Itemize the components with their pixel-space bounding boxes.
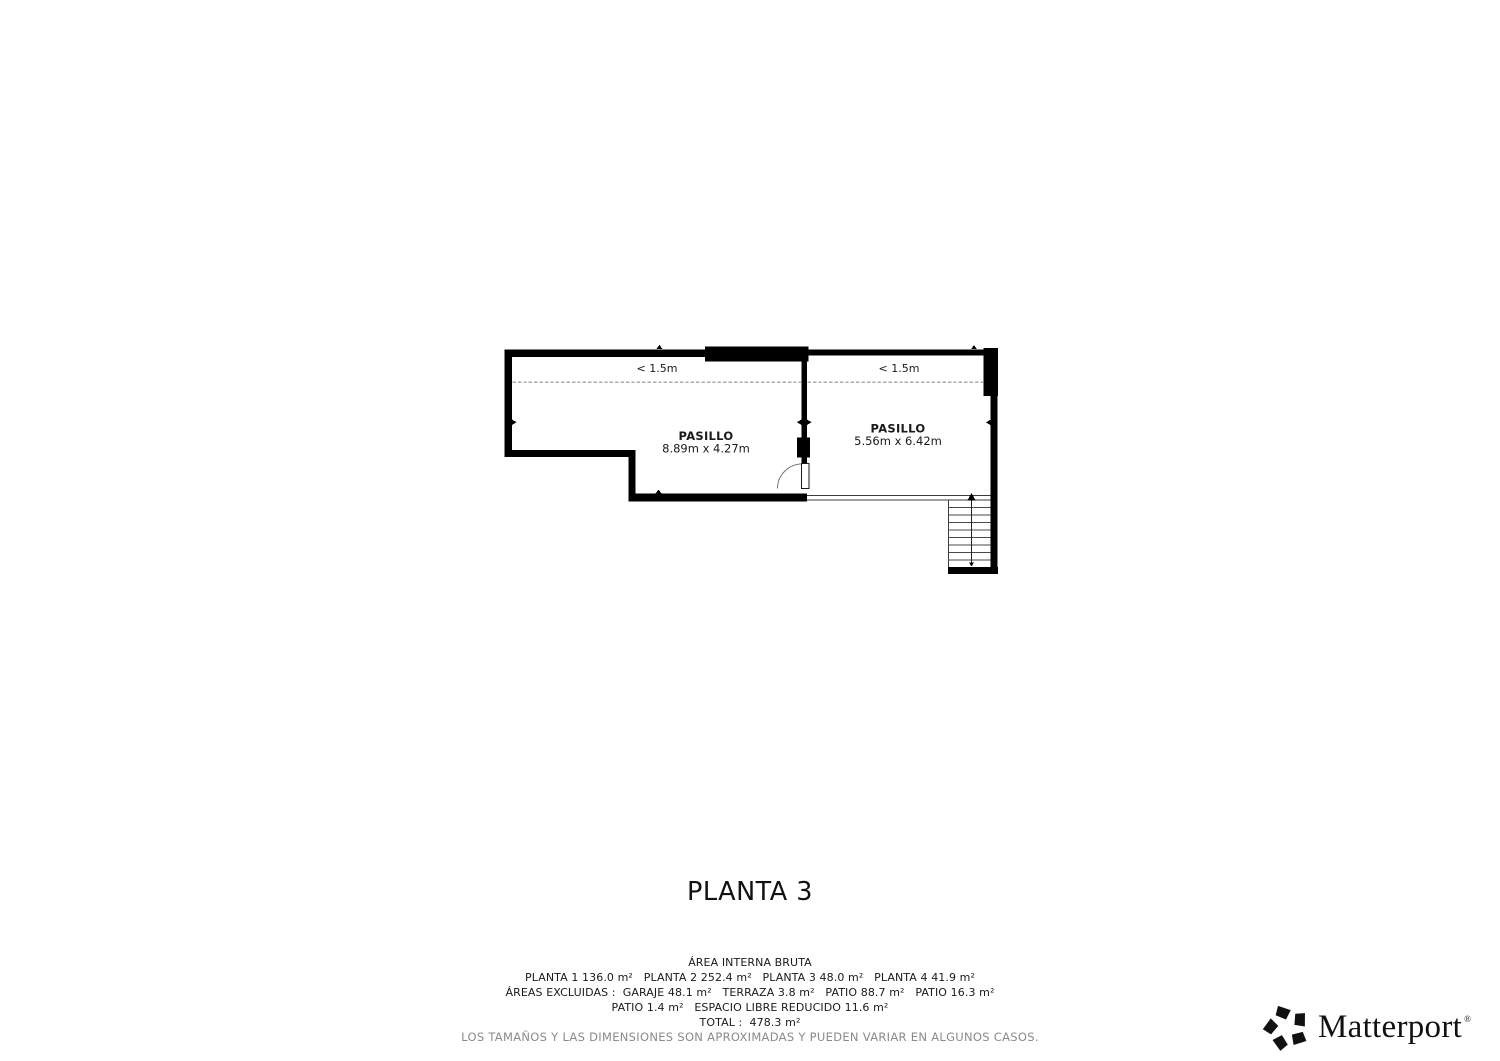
tick-divider-left [797, 420, 802, 426]
wall-divider-stub [802, 458, 808, 464]
wall-top-block [705, 347, 809, 362]
room-dimensions-pasillo-1: 8.89m x 4.27m [662, 442, 750, 456]
wall-stairs-bottom [948, 567, 998, 574]
floor-title: PLANTA 3 [0, 879, 1500, 905]
door-leaf [802, 464, 810, 489]
wall-divider-upper [802, 349, 808, 438]
area-line-plantas: PLANTA 1 136.0 m² PLANTA 2 252.4 m² PLAN… [0, 970, 1500, 985]
wall-bottom-left-room [629, 494, 808, 502]
stairs [949, 493, 991, 567]
door [778, 464, 810, 489]
low-ceiling-label-right: < 1.5m [879, 362, 920, 375]
stairs-down-tick-icon [969, 563, 974, 567]
tick-top-left-wall [657, 345, 663, 349]
low-ceiling-label-left: < 1.5m [637, 362, 678, 375]
matterport-logo: Matterport® [1261, 1002, 1493, 1054]
wall-top-right-room [807, 350, 998, 356]
wall-notch-horizontal [505, 450, 636, 457]
floor-plan: < 1.5m < 1.5m PASILLO 8.89m x 4.27m PASI… [504, 344, 1000, 578]
tick-divider-right [807, 420, 812, 426]
area-line-excluidas: ÁREAS EXCLUIDAS : GARAJE 48.1 m² TERRAZA… [0, 985, 1500, 1000]
tick-left-wall [512, 420, 517, 426]
wall-right-thick [984, 348, 999, 396]
area-heading: ÁREA INTERNA BRUTA [0, 955, 1500, 970]
corridor-edge [807, 496, 991, 500]
wall-left [505, 350, 513, 458]
wall-top-left-room [505, 350, 706, 358]
wall-right-thin [991, 396, 998, 574]
tick-bottom-wall [656, 490, 662, 494]
brand-name: Matterport [1318, 1009, 1462, 1045]
tick-top-right-wall [971, 345, 977, 349]
stairs-up-arrow-icon [967, 493, 975, 501]
room-dimensions-pasillo-2: 5.56m x 6.42m [854, 434, 942, 448]
matterport-pinwheel-icon [1261, 1003, 1312, 1053]
door-swing-arc [778, 464, 803, 489]
wall-divider-block [797, 438, 810, 458]
walls [505, 347, 999, 575]
registered-mark: ® [1464, 1014, 1471, 1024]
tick-right-wall [986, 420, 991, 426]
floor-plan-page: < 1.5m < 1.5m PASILLO 8.89m x 4.27m PASI… [0, 0, 1500, 1061]
matterport-wordmark: Matterport® [1318, 1003, 1471, 1058]
